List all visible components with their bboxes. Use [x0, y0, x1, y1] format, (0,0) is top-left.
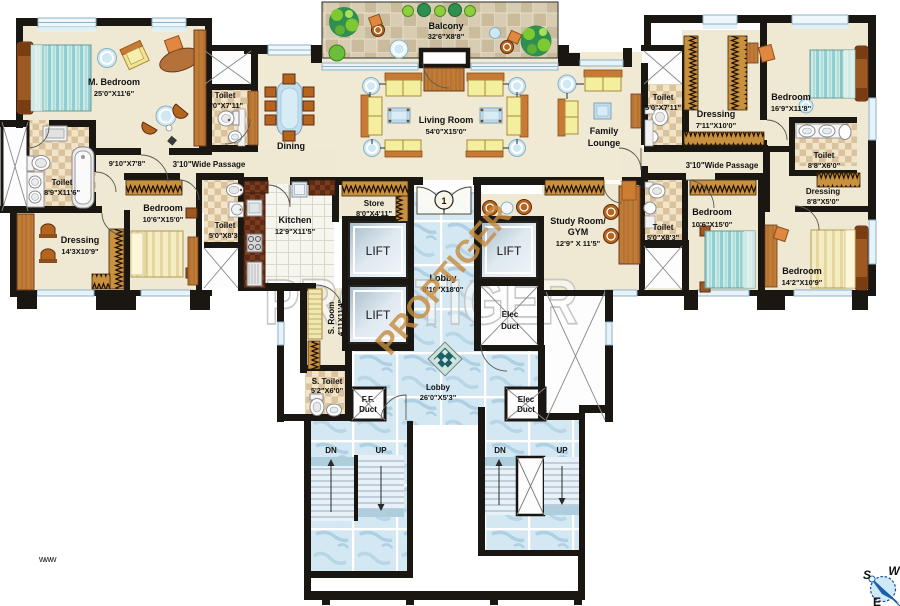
svg-text:16'9"X11'8": 16'9"X11'8"	[771, 104, 812, 113]
svg-text:Toilet: Toilet	[814, 151, 835, 160]
svg-text:10'6"X15'0": 10'6"X15'0"	[692, 220, 733, 229]
svg-text:Dressing: Dressing	[806, 187, 840, 196]
svg-text:Duct: Duct	[517, 405, 535, 414]
svg-text:Kitchen: Kitchen	[278, 215, 311, 225]
svg-text:Toilet: Toilet	[215, 91, 236, 100]
svg-text:Bedroom: Bedroom	[771, 92, 811, 102]
svg-text:8'8"X6'0": 8'8"X6'0"	[808, 161, 841, 170]
svg-text:1: 1	[441, 196, 446, 206]
svg-text:Family: Family	[590, 126, 619, 136]
svg-text:Dressing: Dressing	[61, 235, 100, 245]
svg-text:Elec: Elec	[502, 310, 519, 319]
svg-text:Store: Store	[364, 199, 385, 208]
svg-text:26'0"X5'3": 26'0"X5'3"	[420, 393, 457, 402]
svg-text:5'0"X8'3": 5'0"X8'3"	[209, 231, 242, 240]
svg-text:S: S	[863, 568, 871, 582]
svg-text:E: E	[873, 595, 881, 606]
svg-text:Toilet: Toilet	[653, 93, 674, 102]
svg-text:DN: DN	[325, 446, 337, 455]
svg-text:Study Room/: Study Room/	[550, 216, 606, 226]
svg-text:Dressing: Dressing	[697, 109, 736, 119]
svg-text:Toilet: Toilet	[653, 223, 674, 232]
svg-text:DN: DN	[494, 446, 506, 455]
svg-text:10'6"X15'0": 10'6"X15'0"	[143, 215, 184, 224]
svg-text:5'0"X7'11": 5'0"X7'11"	[207, 101, 244, 110]
svg-text:Toilet: Toilet	[215, 221, 236, 230]
svg-text:Bedroom: Bedroom	[782, 266, 822, 276]
svg-text:7'11"X10'0": 7'11"X10'0"	[696, 121, 737, 130]
svg-text:3'10"Wide Passage: 3'10"Wide Passage	[173, 160, 246, 169]
svg-text:Bedroom: Bedroom	[692, 207, 732, 217]
svg-text:Balcony: Balcony	[428, 21, 463, 31]
svg-text:LIFT: LIFT	[366, 244, 391, 258]
svg-text:UP: UP	[556, 446, 568, 455]
svg-text:GYM: GYM	[568, 227, 589, 237]
svg-text:8'8"X5'0": 8'8"X5'0"	[807, 197, 840, 206]
svg-text:www: www	[38, 554, 57, 564]
svg-text:5'0"X8'3": 5'0"X8'3"	[647, 233, 680, 242]
svg-text:54'0"X15'0": 54'0"X15'0"	[426, 127, 467, 136]
svg-text:UP: UP	[375, 446, 387, 455]
svg-text:9'10"X7'8": 9'10"X7'8"	[109, 159, 146, 168]
svg-text:5'0"X7'11": 5'0"X7'11"	[645, 103, 682, 112]
svg-text:8'9"X11'6": 8'9"X11'6"	[44, 188, 81, 197]
svg-text:Elec: Elec	[518, 395, 535, 404]
svg-text:W: W	[888, 564, 900, 578]
svg-text:Duct: Duct	[359, 405, 377, 414]
svg-text:Living Room: Living Room	[419, 115, 474, 125]
svg-text:8'0"X4'11": 8'0"X4'11"	[356, 209, 393, 218]
svg-text:M. Bedroom: M. Bedroom	[88, 77, 140, 87]
svg-text:Duct: Duct	[501, 322, 519, 331]
svg-text:4'11X11'4": 4'11X11'4"	[336, 299, 345, 336]
svg-text:Bedroom: Bedroom	[143, 203, 183, 213]
svg-text:LIFT: LIFT	[497, 244, 522, 258]
svg-text:F.F.: F.F.	[362, 395, 374, 404]
svg-text:32'6"X8'8": 32'6"X8'8"	[428, 32, 465, 41]
svg-text:3'10"Wide Passage: 3'10"Wide Passage	[686, 161, 759, 170]
svg-text:S. Room: S. Room	[327, 302, 336, 334]
svg-text:14'2"X10'9": 14'2"X10'9"	[782, 278, 823, 287]
svg-text:Lounge: Lounge	[588, 138, 621, 148]
svg-text:12'9"X11'5": 12'9"X11'5"	[275, 227, 316, 236]
svg-text:Toilet: Toilet	[52, 178, 73, 187]
svg-text:25'0"X11'6": 25'0"X11'6"	[94, 89, 135, 98]
svg-text:Lobby: Lobby	[426, 383, 451, 392]
svg-text:S. Toilet: S. Toilet	[312, 377, 343, 386]
svg-text:Dining: Dining	[277, 141, 305, 151]
svg-text:12'9" X 11'5": 12'9" X 11'5"	[556, 239, 601, 248]
svg-text:5'2"X6'0": 5'2"X6'0"	[311, 386, 344, 395]
svg-text:14'3X10'9": 14'3X10'9"	[61, 247, 99, 256]
